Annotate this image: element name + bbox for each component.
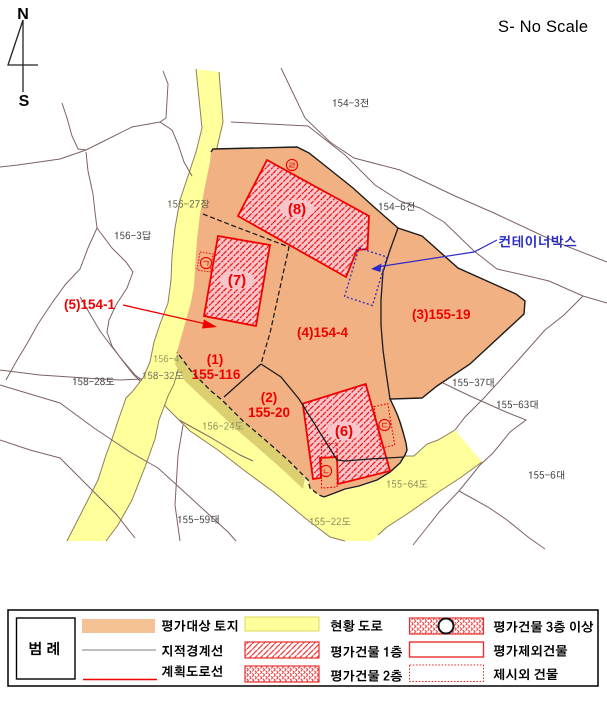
svg-text:(5)154-1: (5)154-1 (64, 297, 116, 312)
svg-text:(1): (1) (207, 352, 224, 367)
svg-text:S- No Scale: S- No Scale (498, 18, 588, 36)
svg-text:N: N (17, 6, 29, 23)
svg-text:155-20: 155-20 (248, 405, 290, 420)
svg-text:(6): (6) (335, 423, 353, 440)
svg-text:(8): (8) (288, 201, 306, 218)
svg-text:(2): (2) (261, 390, 278, 405)
svg-text:(7): (7) (228, 272, 246, 289)
svg-text:S: S (19, 93, 30, 110)
svg-text:(4)154-4: (4)154-4 (297, 325, 349, 340)
svg-text:(3)155-19: (3)155-19 (412, 307, 471, 322)
svg-text:155-116: 155-116 (192, 367, 241, 382)
